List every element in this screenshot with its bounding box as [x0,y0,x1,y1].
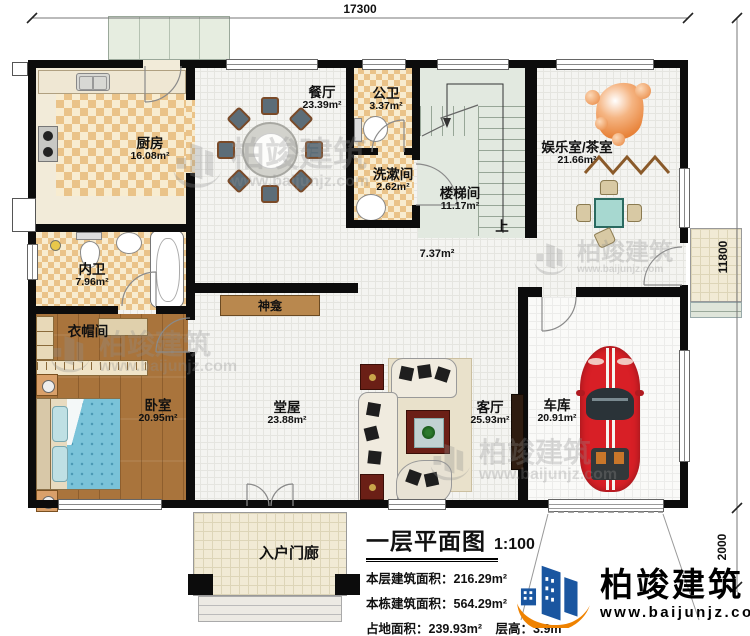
pouf [612,133,625,146]
brand-logo [507,562,599,628]
room-label-stairwell: 楼梯间11.17m² [440,186,481,213]
bathtub [150,230,184,308]
dim-right-lower: 2000 [715,525,729,569]
garage-door [548,499,664,512]
room-label-inner-bath: 内卫7.96m² [75,262,108,289]
room-label-garage: 车库20.91m² [537,398,576,425]
brand-url: www.baijunjz.com [600,604,750,621]
dim-right-upper: 11800 [716,235,730,279]
toilet-tank [76,232,102,240]
nightstand [36,374,58,396]
room-label-cloakroom: 衣帽间 [68,324,109,339]
bath-lamp [50,240,61,251]
title-underline [366,558,498,562]
plan-title: 一层平面图 [366,522,486,556]
watermark: 柏竣建筑www.baijunjz.com [428,438,617,484]
floor-plan-canvas: 神龛 [0,0,750,636]
wall-dining-hall [186,283,358,293]
tea-table [594,198,624,228]
wall-left [28,60,36,508]
window [27,244,38,280]
wall-stair-right [525,60,537,238]
wall-stair-left-a [412,60,420,160]
shrine-table: 神龛 [220,295,320,316]
window [362,59,406,70]
room-label-living: 客厅25.93m² [470,400,509,427]
brand-text: 柏竣建筑 www.baijunjz.com [600,568,750,621]
room-label-dining: 餐厅23.39m² [302,85,341,112]
downspout [12,62,28,76]
window [226,59,318,70]
kitchen-counter [38,70,186,94]
wall-bath-bottom-b [156,306,194,314]
room-label-public-wc: 公卫3.37m² [369,86,402,113]
kitchen-back-door-gap [143,60,180,68]
brand-logo-mark [507,562,599,628]
bath-sink [116,232,142,254]
washroom-sink [356,194,386,221]
room-label-entertainment: 娱乐室/茶室21.66m² [541,140,612,167]
dim-top: 17300 [330,2,390,16]
pouf [585,90,600,105]
dining-chair [261,97,279,115]
sofa-top [391,358,457,398]
wall-kitchen-right-b [186,173,195,320]
wall-garage-top-b [576,287,688,297]
tea-chair [576,204,591,222]
stairs-up-label: 上 [495,219,509,234]
side-porch-steps [690,302,742,318]
stove [38,126,58,162]
pouf [635,83,651,99]
kitchen-sink [76,73,110,91]
watermark: 柏竣建筑www.baijunjz.com [532,240,673,276]
watermark: 柏竣建筑www.baijunjz.com [170,138,369,190]
wall-washroom-bottom [346,220,420,228]
bed [36,398,120,490]
window [388,499,446,510]
room-label-kitchen: 厨房16.08m² [130,136,169,163]
pouf [595,117,608,130]
tea-chair [600,180,618,195]
stair-treads-right [478,106,528,236]
plan-scale: 1:100 [494,536,535,554]
room-label-corridor: 7.37m² [420,248,455,260]
wall-kitchen-right-a [186,60,195,100]
window [679,168,690,228]
rear-landing [108,16,230,60]
porch-column [335,574,360,595]
wall-stair-left-b [412,205,420,228]
brand-name: 柏竣建筑 [600,568,750,601]
window [437,59,509,70]
stair-treads-left [420,106,472,136]
window [556,59,654,70]
wall-kitchen-bath [28,224,194,232]
side-table [360,474,384,500]
room-label-bedroom: 卧室20.95m² [138,398,177,425]
tea-chair [627,204,642,222]
window [679,350,690,462]
room-label-washroom: 洗漱间2.62m² [373,167,414,194]
porch-column [188,574,213,595]
room-label-hall: 堂屋23.88m² [267,400,306,427]
window [58,499,162,510]
wall-bath-bottom-a [28,306,118,314]
side-table [360,364,384,390]
shrine-label: 神龛 [258,297,282,314]
flue-niche [12,198,36,232]
porch-steps [198,596,342,622]
room-label-entry-porch: 入户门廊 [259,546,319,563]
